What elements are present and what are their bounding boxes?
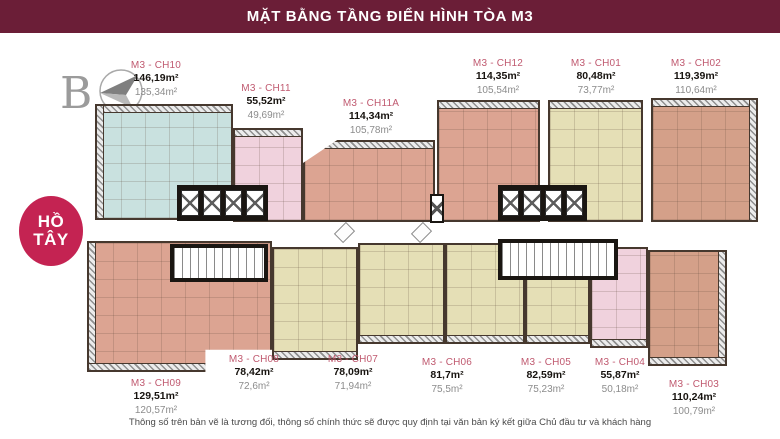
unit-area-gross: 114,35m² [442,70,554,84]
elevator-shaft-icon [502,190,519,216]
elevator-shaft-icon [246,190,264,216]
floorplan-page: MẶT BẰNG TẦNG ĐIỂN HÌNH TÒA M3 B HỒ TÂY [0,0,780,439]
corridor-marker [411,222,432,243]
stair-core-left [170,244,268,282]
unit-area-gross: 55,52m² [210,95,322,109]
unit-label-ch11: M3 - CH11 55,52m² 49,69m² [210,82,322,122]
unit-area-gross: 81,7m² [391,369,503,383]
stair-core-right [498,239,618,280]
elevator-core-left [177,185,268,221]
elevator-shaft-icon [225,190,243,216]
disclaimer-text: Thông số trên bản vẽ là tương đối, thông… [0,417,780,428]
unit-code: M3 - CH01 [540,57,652,70]
apartment-ch02 [651,98,758,222]
elevator-shaft-icon [545,190,562,216]
unit-code: M3 - CH03 [638,378,750,391]
apartment-ch11a [303,140,435,222]
unit-area-gross: 110,24m² [638,391,750,405]
unit-area-net: 135,34m² [100,86,212,99]
unit-area-gross: 146,19m² [100,72,212,86]
unit-area-gross: 114,34m² [315,110,427,124]
unit-label-ch06: M3 - CH06 81,7m² 75,5m² [391,356,503,396]
elevator-core-right [498,185,587,221]
unit-code: M3 - CH04 [564,356,676,369]
unit-area-gross: 119,39m² [640,70,752,84]
unit-label-ch08: M3 - CH08 78,42m² 72,6m² [198,353,310,393]
unit-area-net: 73,77m² [540,84,652,97]
unit-area-net: 110,64m² [640,84,752,97]
unit-area-gross: 78,42m² [198,366,310,380]
apartment-ch08 [272,247,358,360]
unit-code: M3 - CH11 [210,82,322,95]
unit-area-gross: 129,51m² [100,390,212,404]
elevator-shaft-icon [523,190,540,216]
unit-area-gross: 80,48m² [540,70,652,84]
service-shaft [430,194,444,223]
unit-code: M3 - CH12 [442,57,554,70]
unit-label-ch03: M3 - CH03 110,24m² 100,79m² [638,378,750,418]
unit-area-net: 49,69m² [210,109,322,122]
unit-code: M3 - CH10 [100,59,212,72]
unit-code: M3 - CH09 [100,377,212,390]
unit-area-net: 120,57m² [100,404,212,417]
lake-badge: HỒ TÂY [19,196,83,266]
unit-area-net: 100,79m² [638,405,750,418]
unit-label-ch09: M3 - CH09 129,51m² 120,57m² [100,377,212,417]
unit-area-net: 105,78m² [315,124,427,137]
lake-badge-line2: TÂY [33,231,69,249]
elevator-shaft-icon [203,190,221,216]
elevator-shaft-icon [181,190,199,216]
unit-label-ch11a: M3 - CH11A 114,34m² 105,78m² [315,97,427,137]
page-title: MẶT BẰNG TẦNG ĐIỂN HÌNH TÒA M3 [247,8,534,25]
unit-code: M3 - CH06 [391,356,503,369]
header-bar: MẶT BẰNG TẦNG ĐIỂN HÌNH TÒA M3 [0,0,780,33]
unit-label-ch12: M3 - CH12 114,35m² 105,54m² [442,57,554,97]
unit-label-ch10: M3 - CH10 146,19m² 135,34m² [100,59,212,99]
unit-area-net: 72,6m² [198,380,310,393]
unit-code: M3 - CH08 [198,353,310,366]
unit-code: M3 - CH02 [640,57,752,70]
unit-label-ch01: M3 - CH01 80,48m² 73,77m² [540,57,652,97]
elevator-shaft-icon [566,190,583,216]
apartment-ch03 [648,250,727,366]
apartment-ch07 [358,243,445,344]
unit-code: M3 - CH11A [315,97,427,110]
unit-area-net: 105,54m² [442,84,554,97]
north-letter: B [60,72,92,116]
corridor-marker [334,222,355,243]
unit-area-net: 75,5m² [391,383,503,396]
unit-label-ch02: M3 - CH02 119,39m² 110,64m² [640,57,752,97]
lake-badge-line1: HỒ [38,213,65,231]
